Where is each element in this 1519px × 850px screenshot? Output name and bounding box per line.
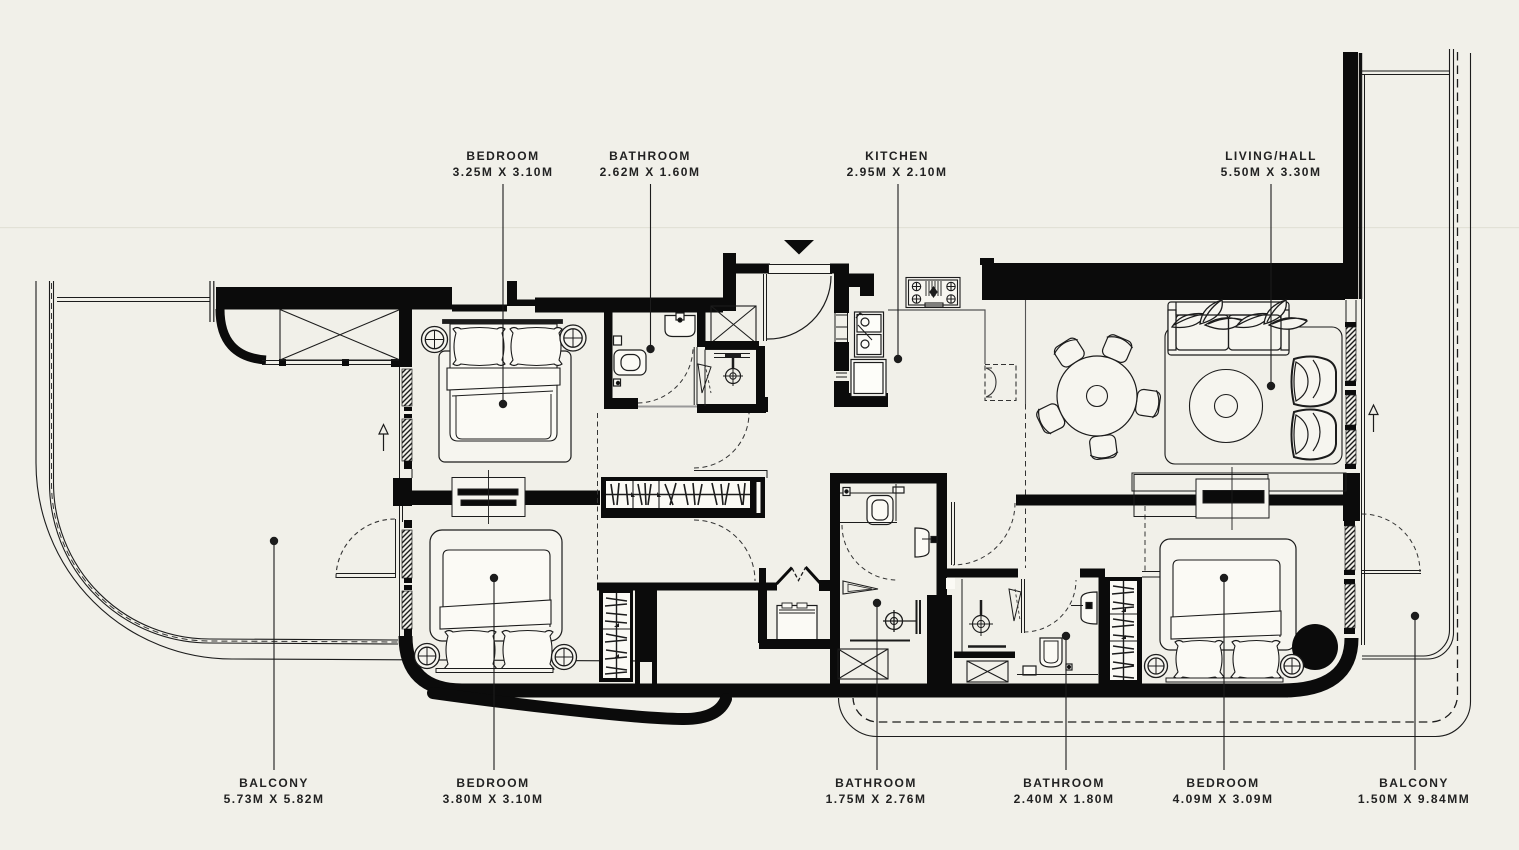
svg-text:BEDROOM: BEDROOM bbox=[466, 149, 539, 163]
svg-text:3.80M X 3.10M: 3.80M X 3.10M bbox=[443, 792, 544, 806]
svg-text:BATHROOM: BATHROOM bbox=[835, 776, 917, 790]
svg-text:KITCHEN: KITCHEN bbox=[865, 149, 929, 163]
svg-text:2.62M X 1.60M: 2.62M X 1.60M bbox=[600, 165, 701, 179]
svg-text:3.25M X 3.10M: 3.25M X 3.10M bbox=[453, 165, 554, 179]
svg-text:BALCONY: BALCONY bbox=[1379, 776, 1449, 790]
svg-text:1.75M X 2.76M: 1.75M X 2.76M bbox=[826, 792, 927, 806]
svg-text:BEDROOM: BEDROOM bbox=[1186, 776, 1259, 790]
svg-text:BALCONY: BALCONY bbox=[239, 776, 309, 790]
svg-text:BATHROOM: BATHROOM bbox=[1023, 776, 1105, 790]
svg-text:2.40M X 1.80M: 2.40M X 1.80M bbox=[1014, 792, 1115, 806]
svg-text:LIVING/HALL: LIVING/HALL bbox=[1225, 149, 1317, 163]
svg-text:BEDROOM: BEDROOM bbox=[456, 776, 529, 790]
svg-text:1.50M X 9.84MM: 1.50M X 9.84MM bbox=[1358, 792, 1470, 806]
svg-text:5.50M X 3.30M: 5.50M X 3.30M bbox=[1221, 165, 1322, 179]
svg-text:BATHROOM: BATHROOM bbox=[609, 149, 691, 163]
svg-text:5.73M X 5.82M: 5.73M X 5.82M bbox=[224, 792, 325, 806]
svg-text:4.09M X 3.09M: 4.09M X 3.09M bbox=[1173, 792, 1274, 806]
svg-text:2.95M X 2.10M: 2.95M X 2.10M bbox=[847, 165, 948, 179]
